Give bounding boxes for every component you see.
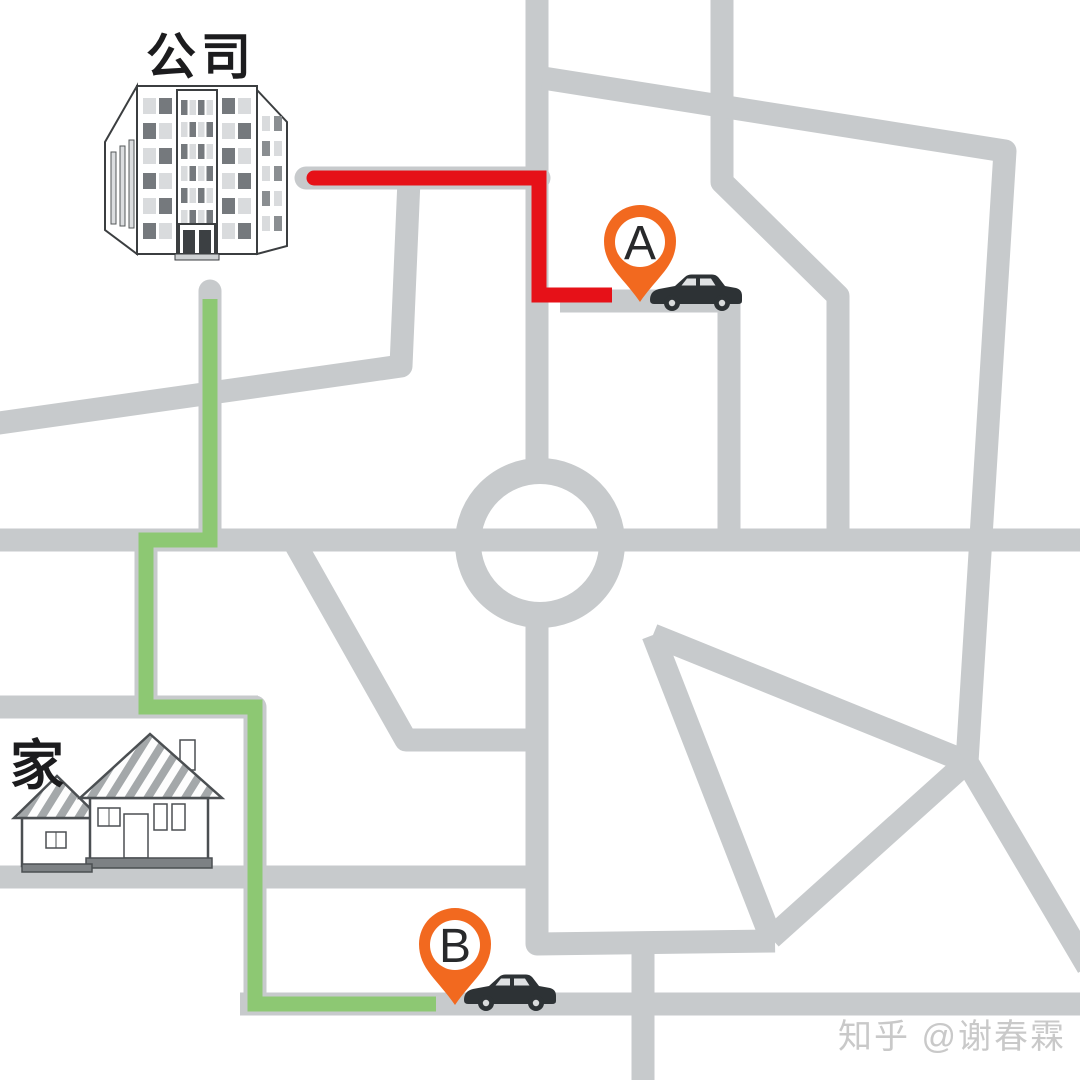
pin-b-label: B bbox=[439, 920, 471, 973]
map-illustration: A B 公司 家 知乎 @谢春霖 bbox=[0, 0, 1080, 1080]
home-label: 家 bbox=[10, 736, 64, 796]
map-canvas: A B 公司 家 知乎 @谢春霖 bbox=[0, 0, 1080, 1080]
pin-a-label: A bbox=[624, 217, 656, 270]
company-label: 公司 bbox=[146, 29, 256, 85]
watermark: 知乎 @谢春霖 bbox=[838, 1018, 1066, 1056]
red-route-line bbox=[314, 178, 612, 295]
road-mid-diagonal bbox=[293, 540, 545, 740]
road-triangle-right bbox=[771, 762, 967, 938]
office-building-illustration bbox=[105, 86, 287, 260]
pin-a: A bbox=[604, 205, 676, 302]
